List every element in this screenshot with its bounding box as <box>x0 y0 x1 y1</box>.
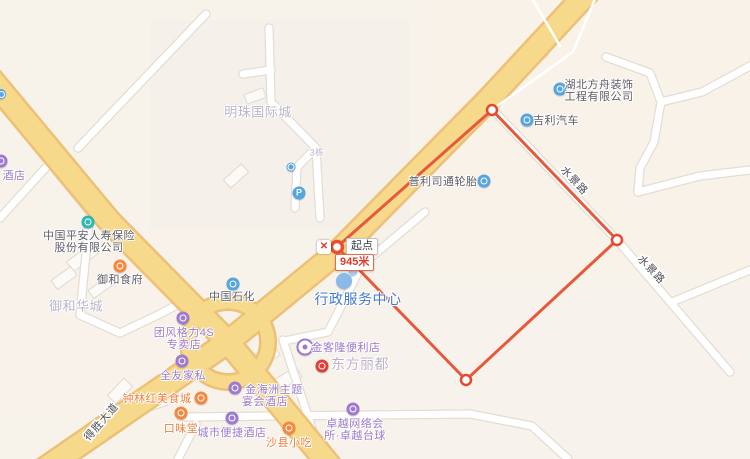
internet-cafe-icon <box>347 403 360 416</box>
map-overlay-layer: 酒店明珠国际城3栋P湖北方舟装饰工程有限公司吉利汽车普利司通轮胎中国平安人寿保险… <box>0 0 750 459</box>
measure-distance-label: 945米 <box>335 254 374 271</box>
poi-label: 酒店 <box>3 167 26 183</box>
poi-label: 工程有限公司 <box>565 88 634 104</box>
landmark-icon <box>316 360 329 373</box>
measure-start-label: 起点 <box>346 238 378 255</box>
poi-label: 城市便捷酒店 <box>198 424 267 440</box>
government-icon <box>336 273 352 289</box>
tire-shop-icon <box>478 175 491 188</box>
poi-label: 所·卓越台球 <box>324 427 386 443</box>
bus-stop-icon <box>0 89 6 99</box>
poi-label: 行政服务中心 <box>315 289 402 309</box>
map-canvas[interactable]: 水景路水景路得胜大道 酒店明珠国际城3栋P湖北方舟装饰工程有限公司吉利汽车普利司… <box>0 0 750 459</box>
poi-label: 沙县小吃 <box>266 434 312 450</box>
furniture-store-icon <box>176 355 189 368</box>
poi-label: 吉利汽车 <box>533 112 579 128</box>
poi-icon <box>287 163 296 172</box>
snack-icon <box>283 422 296 435</box>
appliance-store-icon <box>177 312 190 325</box>
hotel-icon <box>229 382 242 395</box>
poi-label: 3栋 <box>309 146 324 159</box>
restaurant-icon <box>175 407 188 420</box>
poi-label: 明珠国际城 <box>224 102 292 121</box>
poi-label: 普利司通轮胎 <box>409 173 478 189</box>
poi-label: 御和华城 <box>49 296 103 315</box>
food-court-icon <box>195 392 208 405</box>
poi-label: 股份有限公司 <box>55 239 124 255</box>
poi-label: 御和食府 <box>97 271 143 287</box>
parking-icon: P <box>293 187 306 200</box>
poi-label: 东方丽都 <box>331 354 389 374</box>
poi-label: 金客隆便利店 <box>312 339 381 355</box>
poi-label: 宴会酒店 <box>242 393 288 409</box>
hotel-icon <box>0 155 8 168</box>
measure-delete-button[interactable]: ✕ <box>317 240 331 254</box>
hotel-icon <box>226 412 239 425</box>
poi-label: 中国石化 <box>209 288 255 304</box>
car-dealer-icon <box>521 114 534 127</box>
poi-label: 专卖店 <box>167 336 202 352</box>
poi-label: 口味堂 <box>164 420 199 436</box>
poi-label: 钟林红美食城 <box>123 390 192 406</box>
poi-label: 全友家私 <box>160 367 206 383</box>
